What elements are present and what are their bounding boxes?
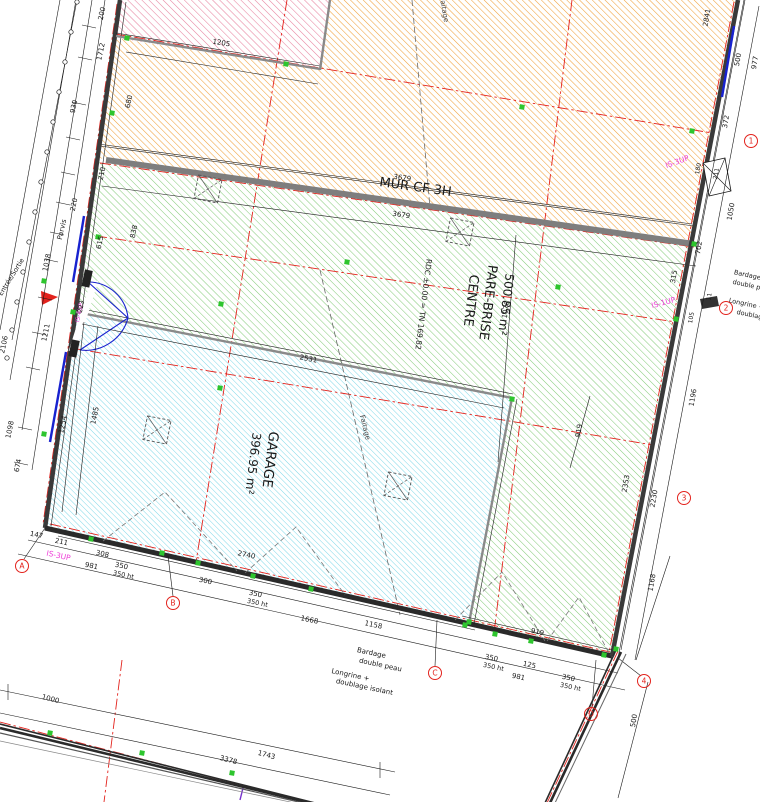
survey-marker-icon (139, 750, 145, 756)
survey-marker-icon (519, 104, 525, 110)
dim: 350 ht (482, 661, 505, 673)
survey-marker-icon (218, 301, 224, 307)
grid-bubble-label: C (432, 669, 437, 678)
dim: 1196 (688, 388, 699, 407)
dim: 1000 (41, 693, 60, 705)
floor-plan-svg: CENTREPARE-BRISE500.85 m²RDC ±0.00 = TN … (0, 0, 760, 802)
fence-post-icon (51, 120, 55, 124)
dim: 977 (750, 55, 760, 70)
fence-post-icon (33, 210, 37, 214)
survey-marker-icon (466, 619, 472, 625)
dim: 200 (97, 6, 108, 21)
fence-post-icon (75, 0, 79, 4)
dim: 674 (13, 458, 24, 473)
dim: 1168 (647, 573, 658, 592)
fence-post-icon (45, 150, 49, 154)
dim: 1668 (300, 614, 319, 626)
site-boundary-bands (0, 650, 626, 802)
fence-post-icon (15, 300, 19, 304)
fence-post-icon (5, 356, 9, 360)
grid-bubble-B: B (167, 597, 180, 610)
dim: 1211 (40, 323, 52, 342)
dim: 1743 (257, 749, 276, 761)
dim: 3378 (219, 754, 238, 766)
forecourt-label: Parvis (56, 218, 69, 240)
grid-bubble-2: 2 (720, 302, 733, 315)
survey-marker-icon (124, 35, 130, 41)
dim: 930 (69, 99, 80, 114)
dim: 350 ht (112, 569, 135, 581)
survey-marker-icon (528, 638, 534, 644)
dim: 702 (694, 240, 704, 255)
survey-marker-icon (509, 396, 515, 402)
dim: 350 ht (559, 681, 582, 693)
grid-bubble-label: 1 (749, 137, 754, 146)
grid-bubble-3: 3 (678, 492, 691, 505)
survey-marker-icon (673, 316, 679, 322)
grid-bubble-A: A (16, 560, 29, 573)
dim: 1712 (95, 42, 107, 61)
dim: 105 (687, 311, 696, 324)
survey-marker-icon (283, 61, 289, 67)
fence-post-icon (39, 180, 43, 184)
dim: 300 (198, 576, 213, 587)
survey-marker-icon (88, 536, 94, 542)
dim: 372 (721, 114, 731, 129)
grid-bubble-1: 1 (745, 135, 758, 148)
cladding-label-2: double peau (358, 657, 402, 674)
survey-marker-icon (109, 110, 115, 116)
dim: 1050 (726, 202, 737, 221)
survey-marker-icon (555, 284, 561, 290)
dim: 2230 (649, 489, 660, 508)
grid-bubble-label: D (588, 710, 594, 719)
survey-marker-icon (159, 550, 165, 556)
fence-post-icon (21, 270, 25, 274)
survey-marker-icon (195, 560, 201, 566)
survey-marker-icon (41, 431, 47, 437)
survey-marker-icon (250, 573, 256, 579)
grid-bubble-label: 4 (642, 677, 647, 686)
dim: 500 (629, 713, 639, 728)
fence-post-icon (10, 328, 14, 332)
grid-bubble-label: B (170, 599, 175, 608)
fence-post-icon (57, 90, 61, 94)
survey-marker-icon (613, 646, 619, 652)
fence-post-icon (27, 240, 31, 244)
dim: 981 (84, 561, 99, 572)
floor-plan-canvas: CENTREPARE-BRISE500.85 m²RDC ±0.00 = TN … (0, 0, 760, 802)
fence-post-icon (63, 60, 67, 64)
survey-marker-icon (47, 730, 53, 736)
survey-marker-icon (217, 385, 223, 391)
dim: 981 (511, 672, 526, 683)
dim: 2106 (0, 335, 10, 355)
dim: 500 (733, 52, 743, 67)
is-label-bottom-left: IS-3UP (46, 549, 72, 563)
dim: 11 (705, 292, 713, 301)
dim: 147 (29, 530, 44, 541)
grid-bubble-label: 2 (724, 304, 729, 313)
survey-marker-icon (492, 631, 498, 637)
survey-marker-icon (689, 128, 695, 134)
grid-bubble-label: A (19, 562, 25, 571)
grid-bubble-4: 4 (638, 675, 651, 688)
dim: 1038 (41, 253, 53, 272)
dim: 211 (54, 537, 69, 548)
dim: 220 (69, 197, 80, 212)
entrance-label: Entrée/Sortie (0, 257, 26, 297)
survey-marker-icon (41, 278, 47, 284)
survey-marker-icon (229, 770, 235, 776)
dim: 125 (522, 660, 537, 671)
grid-bubble-label: 3 (682, 494, 687, 503)
dim: 1158 (364, 619, 383, 631)
fence-post-icon (69, 30, 73, 34)
survey-marker-icon (344, 259, 350, 265)
survey-marker-icon (601, 652, 607, 658)
survey-marker-icon (308, 586, 314, 592)
grid-bubble-C: C (429, 667, 442, 680)
dim: 308 (95, 549, 110, 560)
dim: 1098 (4, 420, 16, 439)
